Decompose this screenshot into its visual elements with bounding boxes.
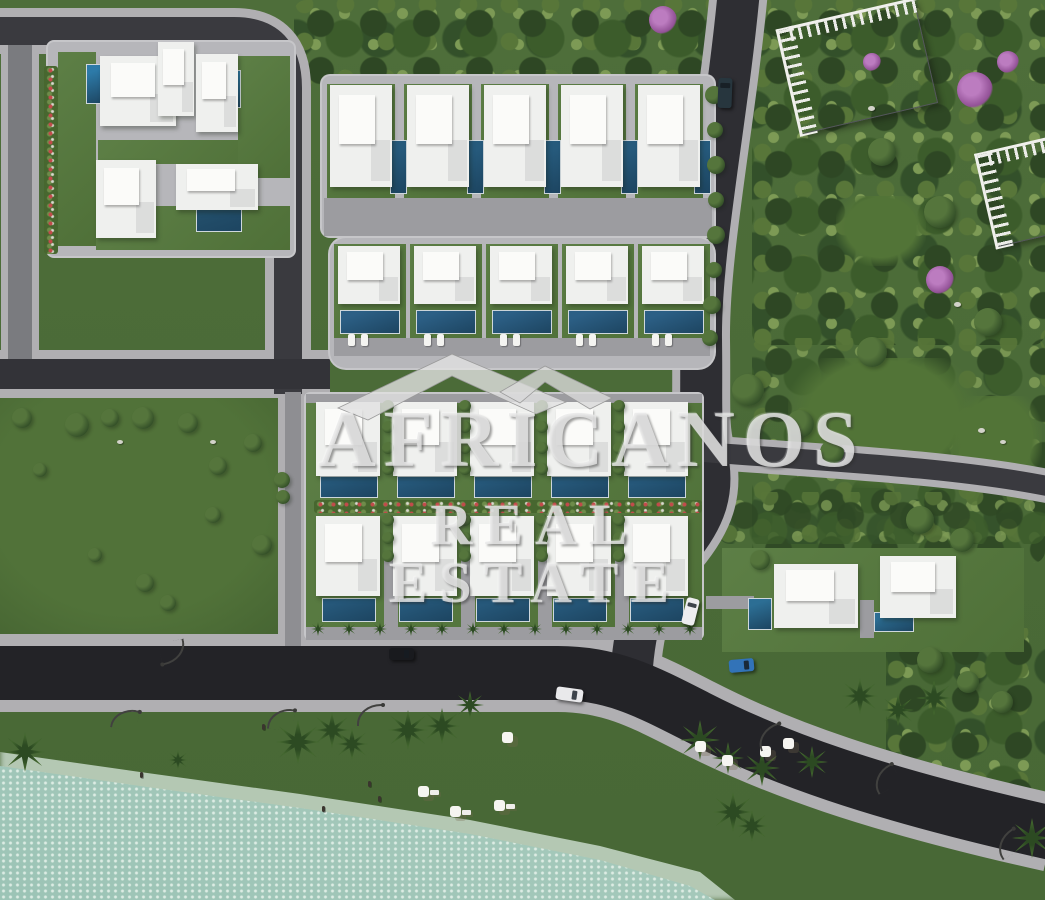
stone [954,302,961,307]
car [555,686,584,703]
villa-building [338,246,400,304]
bush-tree [750,550,770,570]
hedge-tree [536,532,548,544]
palm-tree [314,712,350,748]
park-clearing [952,396,1042,491]
beach-umbrella [695,741,706,752]
palm-tree [736,810,768,842]
villa-building [96,160,156,238]
bush-tree [706,262,722,278]
hedge-tree [536,442,548,454]
villa-building [414,246,476,304]
bush-tree [136,574,154,592]
villa-building [774,564,858,628]
hedge-tree [382,532,394,544]
villa-building [407,85,469,187]
street-lamp [357,704,383,726]
swimming-pool [544,140,561,194]
flower-hedge [44,66,58,254]
beach-person [322,806,325,812]
bush-tree [857,337,887,367]
swimming-pool [553,598,607,622]
bush-tree [33,463,47,477]
swimming-pool [416,310,476,334]
swimming-pool [621,140,638,194]
driveway [706,596,754,609]
car-windshield [687,602,697,608]
hedge-tree [536,463,548,475]
sun-lounger [500,334,507,346]
street-lamp [267,707,295,732]
sun-lounger [513,334,520,346]
sun-lounger [424,334,431,346]
bush-tree [703,296,721,314]
hedge-tree [459,550,471,562]
hedge-tree [382,421,394,433]
villa-building [566,246,628,304]
bush-tree [178,413,198,433]
swimming-pool [568,310,628,334]
hedge-tree [536,400,548,412]
swimming-pool [340,310,400,334]
street-lamp [991,828,1025,860]
bush-tree [132,407,154,429]
swimming-pool [628,476,686,498]
sun-lounger [348,334,355,346]
bush-tree [101,409,119,427]
palm-tree [388,710,428,750]
grass-field [0,396,308,648]
villa-building [196,54,238,132]
purple-flowering-tree [997,51,1019,73]
sunbed [506,804,515,809]
villa-building [642,246,704,304]
bush-tree [65,413,89,437]
hedge-tree [613,532,625,544]
villa-building [547,516,611,596]
flower-hedge [314,500,702,513]
car-windshield [571,690,578,699]
hedge-tree [459,400,471,412]
sunbed [430,790,439,795]
garden-lawn [238,56,290,178]
swimming-pool [476,598,530,622]
beach-umbrella [450,806,461,817]
beach-umbrella [418,786,429,797]
bush-tree [707,156,725,174]
hedge-tree [536,550,548,562]
hedge-tree [536,514,548,526]
stone [117,440,123,444]
stone [978,428,985,433]
swimming-pool [390,140,407,194]
hedge-tree [613,400,625,412]
beach-person [378,796,381,802]
stone [210,440,216,444]
villa-building [470,402,534,476]
bush-tree [276,490,290,504]
hedge-tree [459,421,471,433]
hedge-tree [382,463,394,475]
aerial-render-masterplan: AFRICANOS REAL ESTATE [0,0,1045,900]
palm-tree [424,708,460,744]
park-clearing [836,196,926,266]
hedge-tree [459,463,471,475]
hedge-tree [382,514,394,526]
hedge-tree [459,514,471,526]
villa-building [158,42,194,116]
stone [1000,440,1006,444]
villa-building [624,402,688,476]
swimming-pool [399,598,453,622]
driveway [324,198,712,236]
beach-person [262,724,265,730]
hedge-tree [459,442,471,454]
villa-building [624,516,688,596]
villa-building [316,516,380,596]
swimming-pool [551,476,609,498]
swimming-pool [644,310,704,334]
hedge-tree [613,550,625,562]
bush-tree [88,548,102,562]
purple-flowering-tree [926,266,954,294]
villa-building [393,402,457,476]
hedge-tree [613,463,625,475]
villa-building [316,402,380,476]
purple-flowering-tree [957,72,993,108]
car-windshield [720,83,730,88]
villa-building [638,85,700,187]
bush-tree [252,535,272,555]
bush-tree [868,138,896,166]
palm-tree [168,750,188,770]
sun-lounger [589,334,596,346]
park-clearing [788,358,978,488]
bush-tree [732,374,764,406]
swimming-pool [322,598,376,622]
bush-tree [708,192,724,208]
palm-tree [796,746,828,778]
bush-tree [917,647,943,673]
bush-tree [205,507,221,523]
bush-tree [244,434,262,452]
bush-tree [786,410,814,438]
bush-tree [209,457,227,475]
villa-building [880,556,956,618]
hedge-tree [613,421,625,433]
purple-flowering-tree [649,6,677,34]
bush-tree [950,528,974,552]
bush-tree [957,671,979,693]
sunbed [462,810,471,815]
villa-building [484,85,546,187]
bush-tree [820,440,844,464]
hedge-tree [459,532,471,544]
beach-person [140,772,143,778]
tree-cluster [718,492,1045,544]
hedge-tree [382,442,394,454]
street-lamp [158,639,188,666]
bush-tree [707,122,723,138]
sun-lounger [437,334,444,346]
car [389,648,414,660]
villa-building [547,402,611,476]
street-lamp [754,723,786,752]
car-windshield [404,650,409,658]
swimming-pool [467,140,484,194]
villa-building [176,164,258,210]
villa-building [330,85,392,187]
bush-tree [974,308,1002,336]
beach-umbrella [502,732,513,743]
car [728,658,754,673]
swimming-pool [492,310,552,334]
palm-tree [680,720,720,760]
villa-building [470,516,534,596]
palm-tree [456,691,484,719]
sun-lounger [576,334,583,346]
bush-tree [906,506,934,534]
palm-tree [336,728,368,760]
sun-lounger [361,334,368,346]
tree-cluster [886,628,1045,796]
bush-tree [274,472,290,488]
beach-umbrella [722,755,733,766]
villa-building [490,246,552,304]
villa-building [561,85,623,187]
beach-person [368,781,371,787]
bush-tree [924,196,956,228]
hedge-tree [536,421,548,433]
villa-building [393,516,457,596]
bush-tree [12,408,32,428]
swimming-pool [397,476,455,498]
hedge-tree [382,400,394,412]
bush-tree [160,595,176,611]
swimming-pool [630,598,684,622]
beach-umbrella [494,800,505,811]
palm-tree [842,678,878,714]
street-lamp [110,706,140,733]
sun-lounger [665,334,672,346]
car-windshield [743,660,749,669]
car [717,78,732,108]
bush-tree [707,226,725,244]
swimming-pool [748,598,772,630]
bush-tree [702,330,718,346]
swimming-pool [474,476,532,498]
swimming-pool [320,476,378,498]
hedge-tree [613,442,625,454]
bush-tree [991,691,1013,713]
sun-lounger [652,334,659,346]
hedge-tree [382,550,394,562]
driveway [860,600,874,638]
hedge-tree [613,514,625,526]
